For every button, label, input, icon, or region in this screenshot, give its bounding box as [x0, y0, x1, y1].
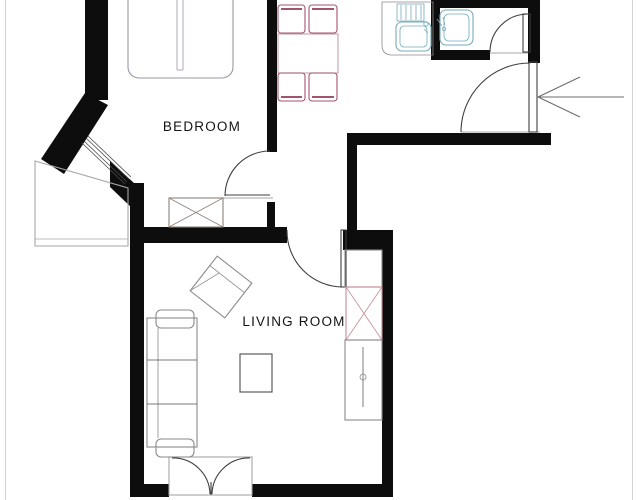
- chair: [278, 73, 305, 101]
- bedroom-label: BEDROOM: [163, 119, 241, 134]
- sofa: [147, 310, 197, 457]
- wall-living-bottom-left: [130, 484, 169, 497]
- wall-bedroom-bottom: [130, 227, 287, 243]
- wall-bedroom-right-lower: [267, 202, 275, 227]
- entrance-door: [461, 62, 540, 132]
- kitchen-sink: [382, 2, 433, 55]
- wall-bathroom-top: [431, 0, 533, 8]
- chair: [309, 5, 337, 33]
- wall-corridor-right: [347, 133, 357, 250]
- bathroom-door: [490, 14, 530, 53]
- chair: [309, 73, 337, 101]
- entrance-arrow: [538, 77, 624, 117]
- living-room-door: [287, 230, 346, 287]
- balcony-double-door: [169, 457, 252, 495]
- shelf-unit: [345, 340, 382, 420]
- bedroom-wardrobe: [169, 198, 223, 227]
- double-bed: [128, 0, 233, 78]
- dining-chairs: [278, 5, 337, 101]
- wall-bathroom-bottom: [431, 50, 490, 60]
- floor-plan: BEDROOM LIVING ROOM: [0, 0, 637, 500]
- washbasin: [437, 10, 473, 45]
- floor-plan-drawing: BEDROOM LIVING ROOM: [0, 0, 637, 500]
- walls: [41, 0, 551, 497]
- cabinet: [345, 250, 382, 287]
- living-room-label: LIVING ROOM: [242, 314, 345, 329]
- armchair: [190, 256, 252, 318]
- wall-bedroom-left: [85, 0, 108, 100]
- wall-entry-bottom: [348, 133, 551, 145]
- bedroom-door: [169, 151, 273, 198]
- coffee-table: [240, 354, 272, 392]
- wall-bedroom-right-upper: [267, 0, 277, 152]
- living-wardrobe: [346, 287, 382, 340]
- dining-table: [278, 34, 338, 73]
- wall-living-right: [382, 243, 393, 497]
- chair: [278, 5, 305, 33]
- wall-diagonal: [41, 93, 108, 174]
- wall-living-bottom-right: [252, 484, 393, 497]
